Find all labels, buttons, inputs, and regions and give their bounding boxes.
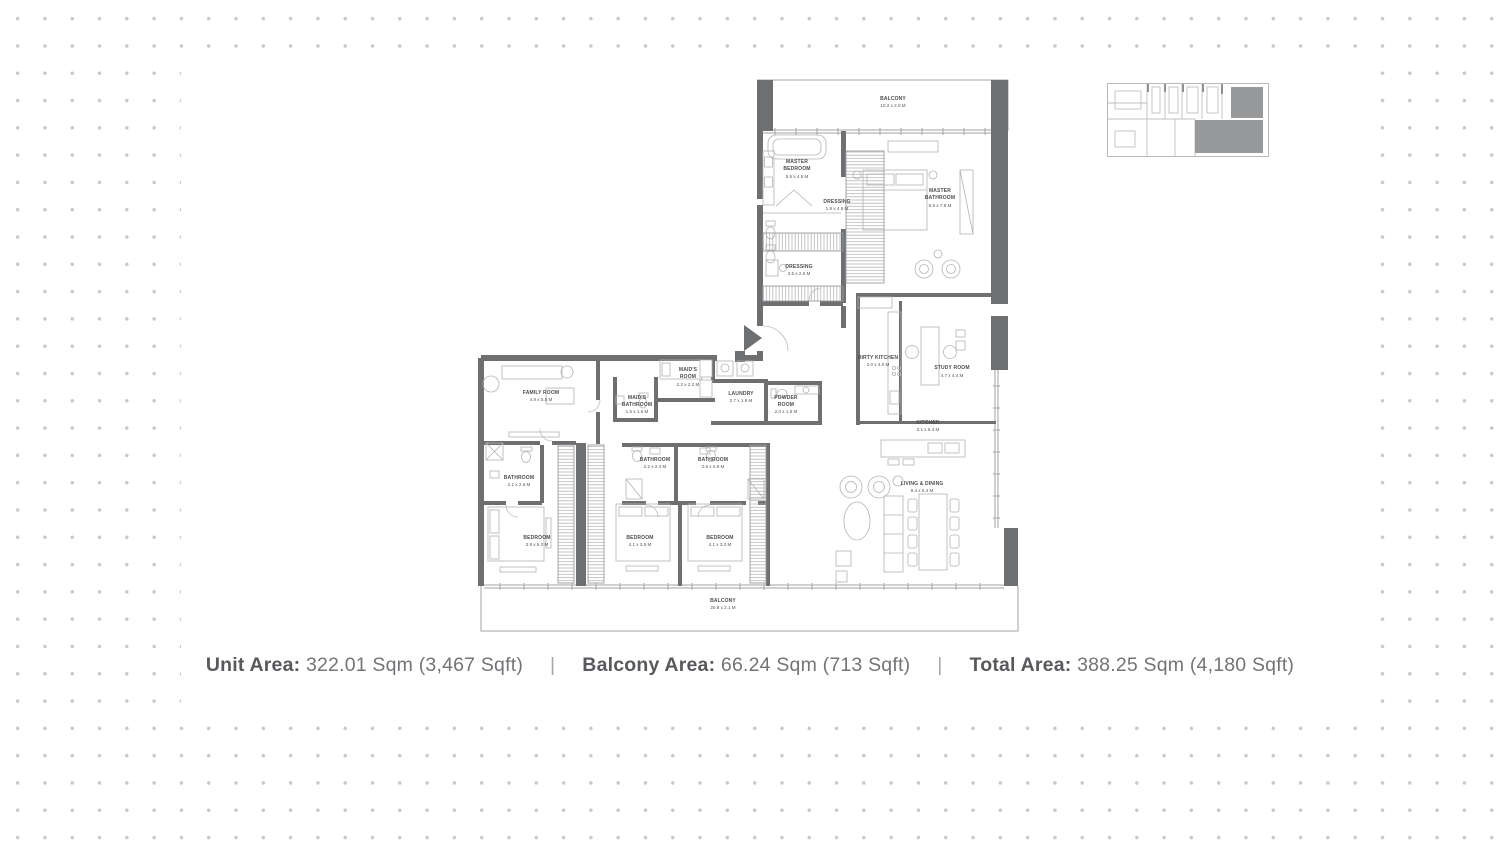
room-label: DRESSING	[823, 199, 850, 205]
room-label: BALCONY	[710, 598, 736, 604]
room-dims: 2.1 x 2.6 M	[508, 482, 531, 487]
room-dims: 4.1 x 3.2 M	[709, 542, 732, 547]
room-dims: 3.5 x 2.5 M	[788, 271, 811, 276]
room-dims: 4.7 x 4.4 M	[941, 373, 964, 378]
room-label: MAID'S	[628, 395, 647, 401]
room-label: BATHROOM	[698, 457, 728, 463]
room-label: BALCONY	[880, 96, 906, 102]
entrance-arrow-icon	[744, 325, 762, 351]
key-plan	[1107, 83, 1270, 157]
stats-separator: |	[937, 654, 942, 676]
room-label: MASTER	[929, 188, 951, 194]
area-stats-bar: Unit Area: 322.01 Sqm (3,467 Sqft)|Balco…	[150, 654, 1350, 677]
room-dims: 10.2 x 2.0 M	[880, 103, 905, 108]
room-dims: 2.2 x 2.2 M	[677, 382, 700, 387]
room-label: MASTER	[786, 159, 808, 165]
floor-plan: BALCONY 10.2 x 2.0 M MASTER BEDROOM 5.5 …	[460, 72, 1040, 638]
room-dims: 5.5 x 4.5 M	[786, 174, 809, 179]
room-dims: 20.8 x 2.1 M	[710, 605, 735, 610]
room-label: BATHROOM	[504, 475, 534, 481]
room-label: LIVING & DINING	[901, 481, 944, 487]
room-label: KITCHEN	[916, 420, 940, 426]
room-dims: 2.2 x 2.4 M	[644, 464, 667, 469]
room-label: BATHROOM	[622, 402, 652, 408]
room-dims: 3.1 x 5.4 M	[917, 427, 940, 432]
room-label: BEDROOM	[523, 535, 550, 541]
door-arcs	[506, 288, 820, 517]
room-dims: 3.9 x 5.2 M	[526, 542, 549, 547]
room-label: BEDROOM	[783, 166, 810, 172]
room-dims: 2.0 x 1.5 M	[775, 409, 798, 414]
unit-area-label: Unit Area:	[206, 654, 300, 676]
room-label: STUDY ROOM	[934, 365, 969, 371]
balcony-area-value: 66.24 Sqm (713 Sqft)	[721, 654, 910, 676]
room-dims: 5.5 x 7.5 M	[929, 203, 952, 208]
room-dims: 1.8 x 4.5 M	[826, 206, 849, 211]
room-label: POWDER	[774, 395, 798, 401]
room-label: ROOM	[778, 402, 794, 408]
balcony-area-stat: Balcony Area: 66.24 Sqm (713 Sqft)	[582, 654, 910, 676]
room-label: BEDROOM	[706, 535, 733, 541]
room-label: BEDROOM	[626, 535, 653, 541]
room-dims: 4.1 x 3.5 M	[629, 542, 652, 547]
unit-area-value: 322.01 Sqm (3,467 Sqft)	[306, 654, 523, 676]
room-label: ROOM	[680, 374, 696, 380]
room-label: BATHROOM	[640, 457, 670, 463]
room-label: DRESSING	[785, 264, 812, 270]
total-area-label: Total Area:	[970, 654, 1072, 676]
room-label: LAUNDRY	[728, 391, 754, 397]
page-background: { "canvas": {"dot_color": "#c8c9cb", "pa…	[0, 0, 1500, 842]
room-label: BATHROOM	[925, 195, 955, 201]
room-label: FAMILY ROOM	[523, 390, 559, 396]
room-label: DIRTY KITCHEN	[858, 355, 899, 361]
balcony-area-label: Balcony Area:	[582, 654, 715, 676]
room-dims: 2.6 x 2.8 M	[702, 464, 725, 469]
room-dims: 4.8 x 5.5 M	[530, 397, 553, 402]
room-dims: 9.4 x 6.4 M	[911, 488, 934, 493]
total-area-value: 388.25 Sqm (4,180 Sqft)	[1077, 654, 1294, 676]
room-dims: 2.0 x 4.0 M	[867, 362, 890, 367]
room-dims: 1.5 x 1.6 M	[626, 409, 649, 414]
room-label: MAID'S	[679, 367, 698, 373]
total-area-stat: Total Area: 388.25 Sqm (4,180 Sqft)	[970, 654, 1295, 676]
room-dims: 2.7 x 1.9 M	[730, 398, 753, 403]
stats-separator: |	[550, 654, 555, 676]
unit-area-stat: Unit Area: 322.01 Sqm (3,467 Sqft)	[206, 654, 523, 676]
